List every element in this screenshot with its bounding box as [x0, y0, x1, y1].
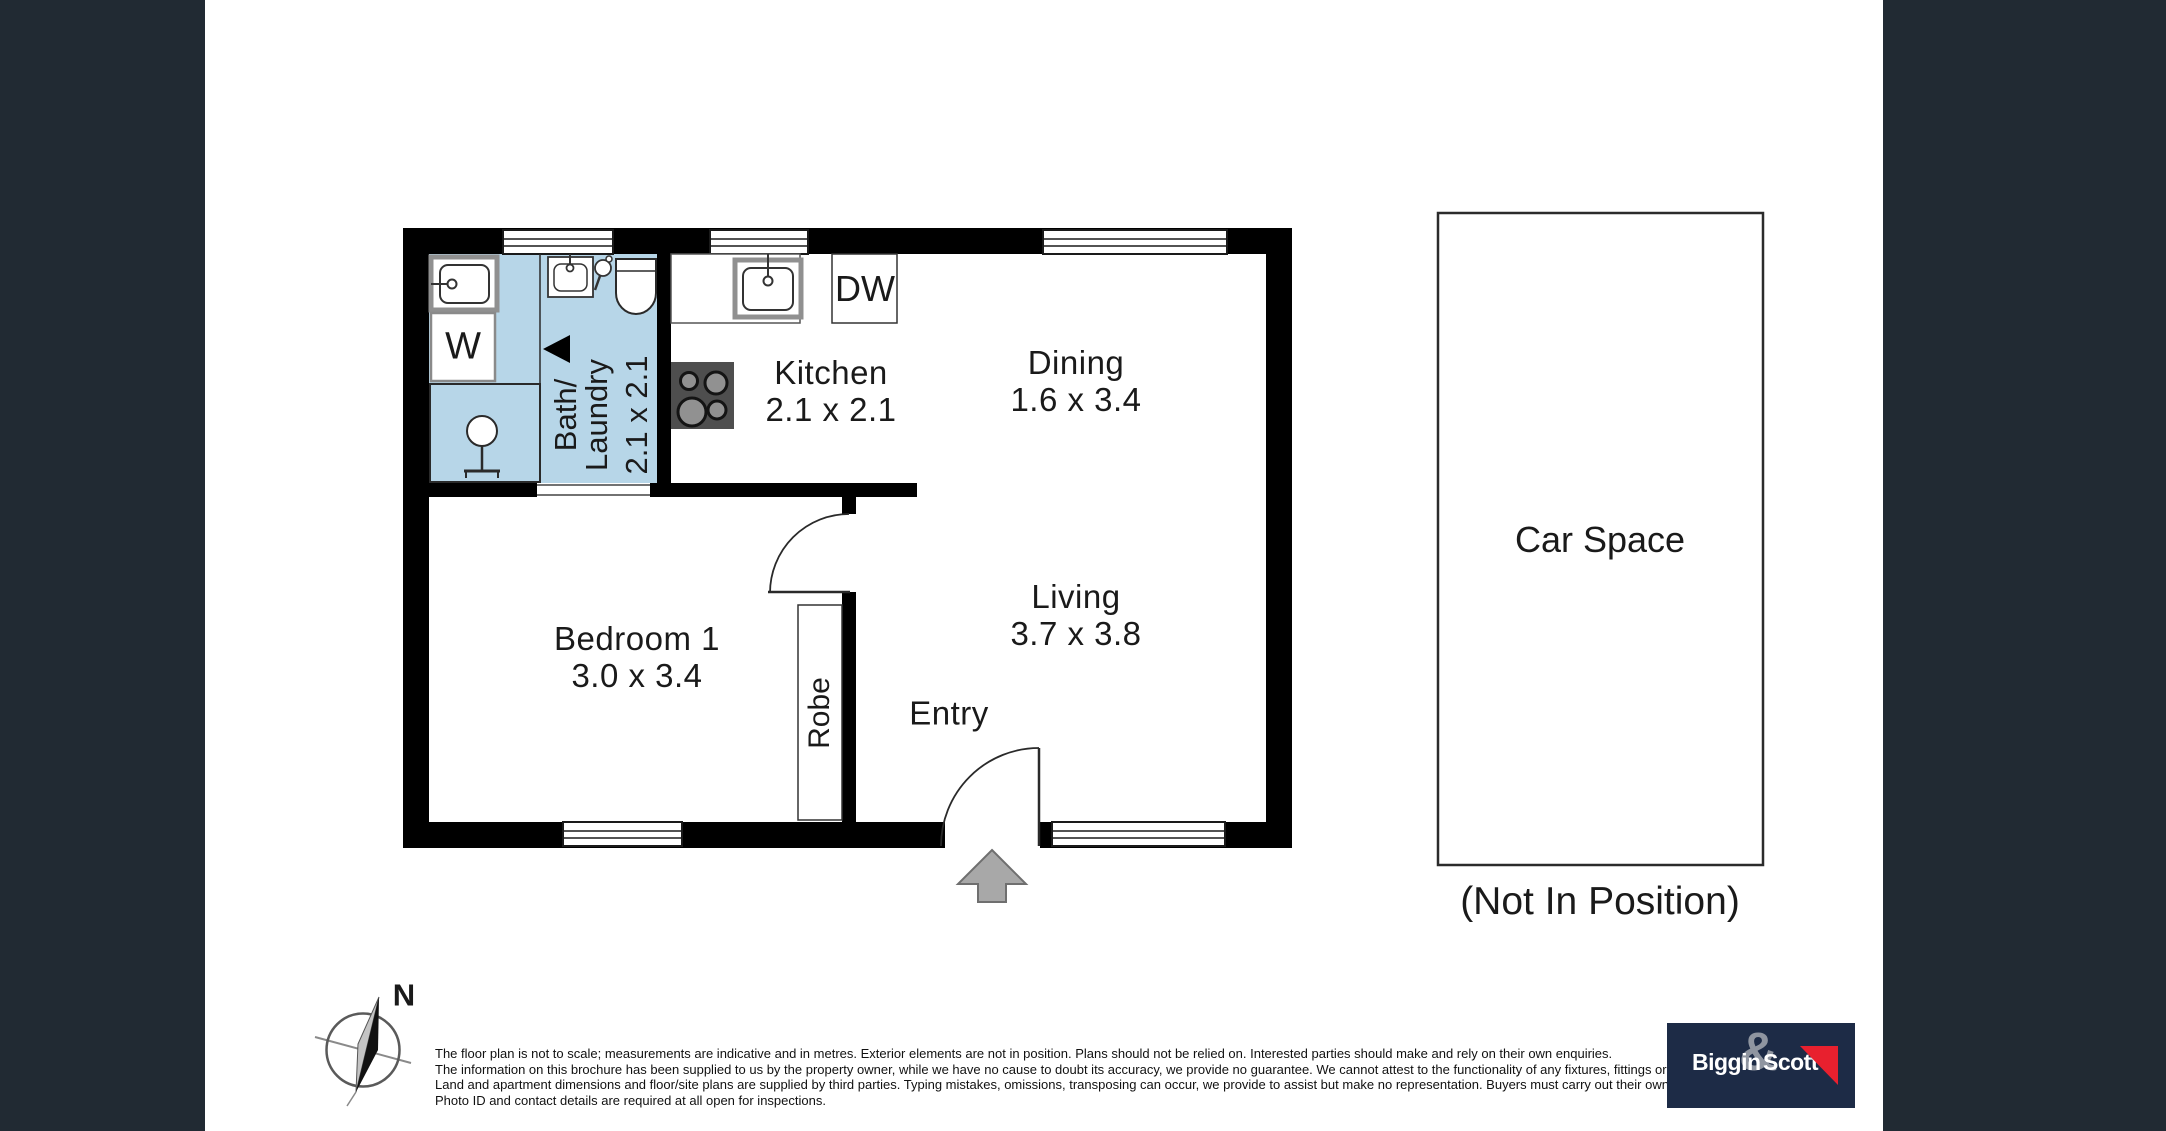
logo-red-flag-icon — [1800, 1046, 1838, 1085]
disclaimer-line: Photo ID and contact details are require… — [435, 1093, 1817, 1109]
living-dims: 3.7 x 3.8 — [1010, 616, 1141, 653]
carspace-label: Car Space — [1515, 520, 1685, 560]
bedroom-dims: 3.0 x 3.4 — [554, 658, 720, 695]
carspace-note: (Not In Position) — [1460, 880, 1740, 924]
laundry-trough — [431, 257, 497, 310]
bath-laundry-label: Bath/ Laundry 2.1 x 2.1 — [550, 356, 652, 475]
bath-name-line1: Bath/ — [550, 356, 581, 475]
agency-logo: & Biggin Scott — [1667, 1023, 1855, 1108]
entry-opening — [945, 820, 1040, 848]
disclaimer-line: The information on this brochure has bee… — [435, 1062, 1817, 1078]
disclaimer-line: Land and apartment dimensions and floor/… — [435, 1077, 1817, 1093]
bath-doorway — [537, 483, 650, 497]
toilet — [616, 259, 656, 314]
logo-word-biggin: Biggin — [1692, 1049, 1761, 1076]
dining-name: Dining — [1010, 345, 1141, 382]
kitchen-label: Kitchen 2.1 x 2.1 — [765, 355, 896, 429]
kitchen-dims: 2.1 x 2.1 — [765, 392, 896, 429]
floorplan-page: Bath/ Laundry 2.1 x 2.1 Kitchen 2.1 x 2.… — [0, 0, 2166, 1131]
bedroom-name: Bedroom 1 — [554, 621, 720, 658]
window-dining — [1043, 230, 1227, 254]
disclaimer-line: The floor plan is not to scale; measurem… — [435, 1046, 1817, 1062]
disclaimer-text: The floor plan is not to scale; measurem… — [435, 1046, 1817, 1108]
window-bath — [503, 230, 613, 254]
entry-arrow-icon — [958, 850, 1026, 902]
dining-label: Dining 1.6 x 3.4 — [1010, 345, 1141, 419]
window-living — [1052, 822, 1225, 846]
kitchen-name: Kitchen — [765, 355, 896, 392]
bath-name-line2: Laundry — [581, 356, 612, 475]
window-bedroom — [563, 822, 682, 846]
bedroom-label: Bedroom 1 3.0 x 3.4 — [554, 621, 720, 695]
kitchen-sink — [735, 254, 801, 317]
washer-label: W — [445, 326, 481, 369]
entry-label: Entry — [909, 696, 989, 733]
compass-north-label: N — [393, 979, 415, 1014]
dishwasher-label: DW — [835, 269, 895, 309]
dining-dims: 1.6 x 3.4 — [1010, 382, 1141, 419]
living-name: Living — [1010, 579, 1141, 616]
robe-label: Robe — [803, 677, 837, 749]
cooktop — [671, 362, 734, 429]
living-label: Living 3.7 x 3.8 — [1010, 579, 1141, 653]
bath-dims: 2.1 x 2.1 — [621, 356, 652, 475]
window-kitchen — [710, 230, 808, 254]
vanity-basin — [548, 254, 593, 297]
floorplan-drawing — [0, 0, 2166, 1131]
